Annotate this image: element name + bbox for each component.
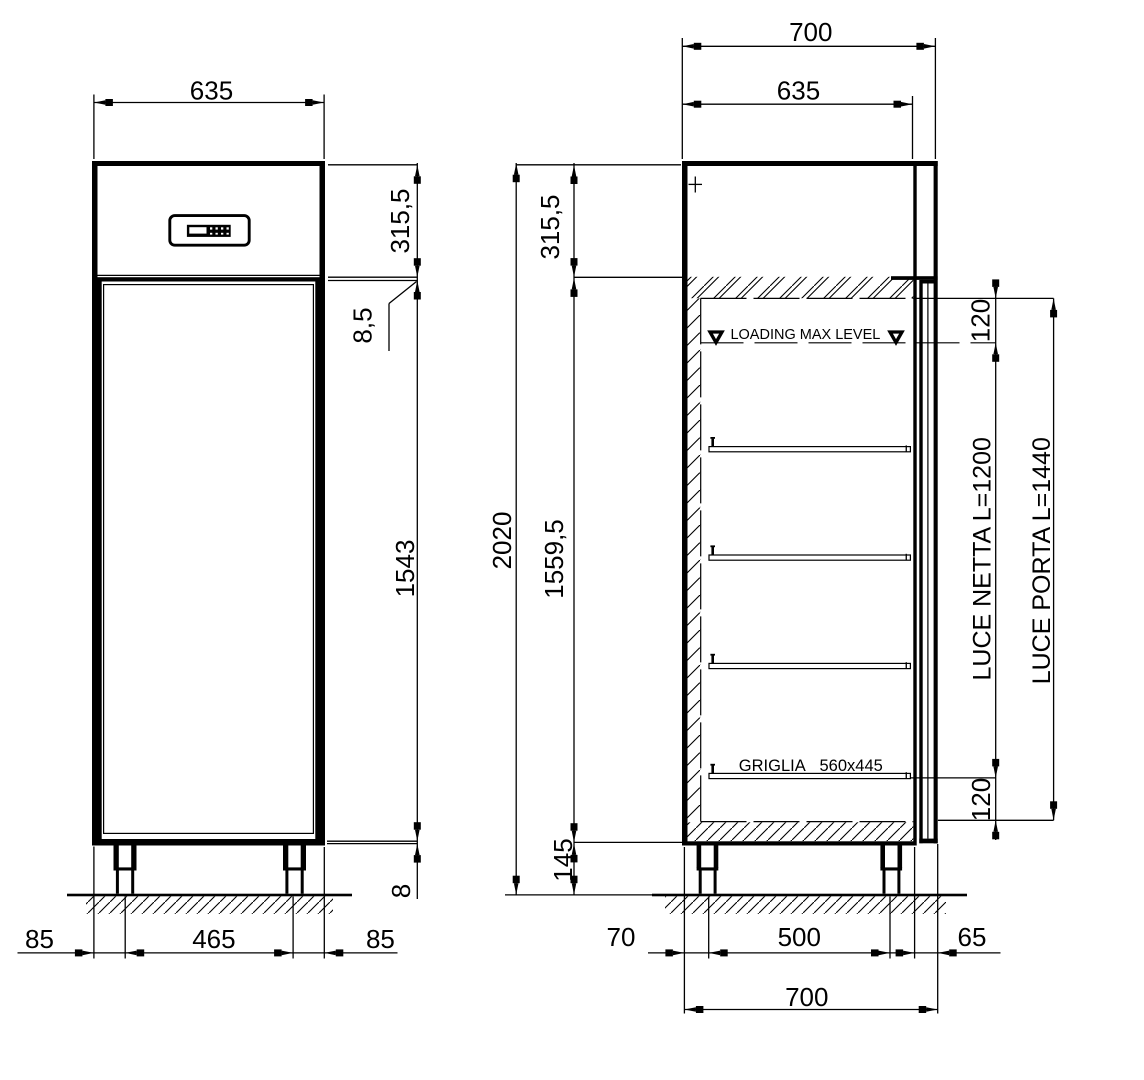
svg-text:65: 65 [958,922,987,952]
svg-text:8,5: 8,5 [348,307,378,343]
svg-text:700: 700 [785,982,828,1012]
svg-text:145: 145 [548,838,578,881]
svg-text:1543: 1543 [390,540,420,598]
svg-text:LOADING MAX LEVEL: LOADING MAX LEVEL [730,327,880,343]
svg-text:GRIGLIA 560x445: GRIGLIA 560x445 [739,757,883,775]
svg-text:8: 8 [386,884,416,898]
svg-text:70: 70 [607,922,636,952]
svg-text:85: 85 [25,924,54,954]
svg-text:2020: 2020 [487,512,517,570]
svg-text:1559,5: 1559,5 [539,519,569,599]
svg-text:700: 700 [789,17,832,47]
svg-text:635: 635 [190,76,233,106]
svg-text:LUCE NETTA L=1200: LUCE NETTA L=1200 [969,437,997,680]
svg-text:120: 120 [966,299,996,342]
svg-text:635: 635 [777,76,820,106]
svg-text:465: 465 [192,924,235,954]
svg-text:120: 120 [966,778,996,821]
svg-text:315,5: 315,5 [535,194,565,259]
svg-text:LUCE PORTA L=1440: LUCE PORTA L=1440 [1028,437,1056,684]
svg-text:500: 500 [778,922,821,952]
svg-text:85: 85 [366,924,395,954]
svg-text:315,5: 315,5 [385,188,415,253]
